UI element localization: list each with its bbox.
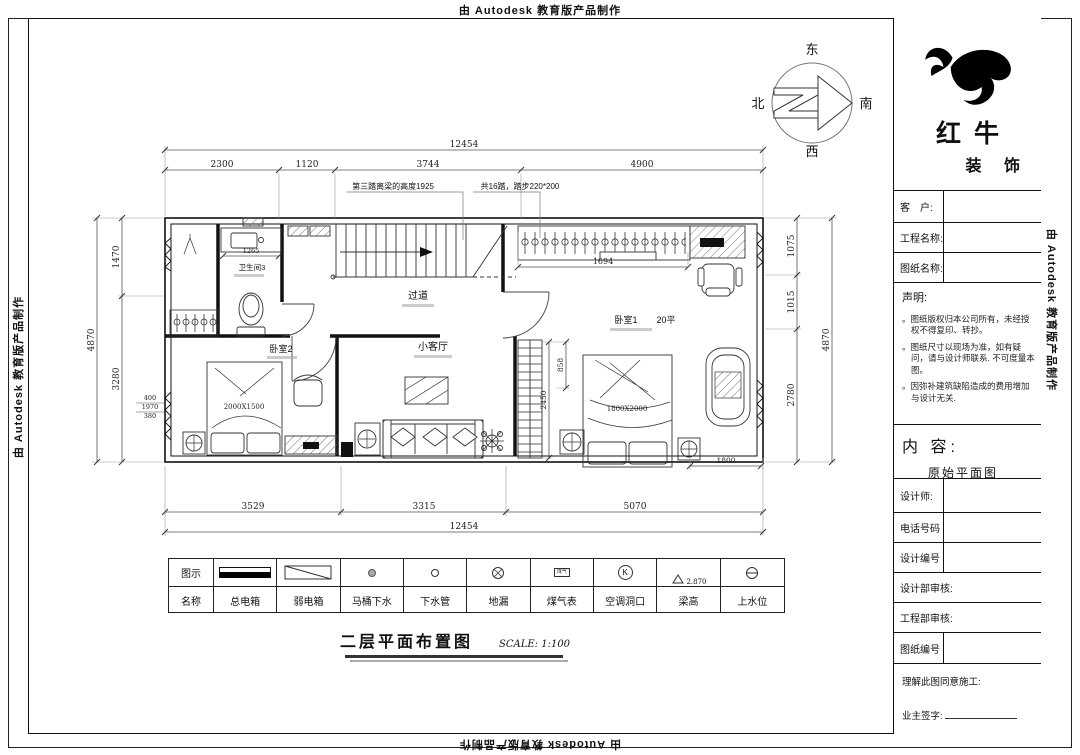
floor-drain-symbol [467, 559, 530, 587]
row-eng-dept-review: 工程部审核: [894, 602, 1041, 632]
legend-name: 下水管 [404, 587, 467, 613]
legend-name: 地漏 [467, 587, 530, 613]
sheet-inner-border [28, 18, 1041, 734]
row-design-no: 设计编号 [894, 542, 1041, 572]
main-electric-box-symbol [214, 559, 277, 587]
row-design-dept-review: 设计部审核: [894, 572, 1041, 602]
row-phone: 电话号码 [894, 512, 1041, 542]
company-name: 红牛 [894, 114, 1041, 150]
statement-item: 。图纸尺寸以现场为准，如有疑问，请与设计师联系. 不可度量本图。 [902, 342, 1035, 376]
legend-name: 空调洞口 [594, 587, 657, 613]
row-designer: 设计师: [894, 478, 1041, 512]
drawing-no-label: 图纸编号 [894, 633, 944, 663]
legend-symbol-header: 图示 [169, 559, 214, 587]
company-logo-cell: 红牛 装 饰 [894, 18, 1041, 190]
row-project-name: 工程名称: [894, 222, 1041, 252]
client-label: 客 户: [894, 191, 944, 222]
legend-name: 梁高 [657, 587, 720, 613]
title-underline-bar-2 [350, 660, 568, 662]
beam-height-symbol: 2.870 [657, 559, 720, 587]
water-supply-symbol [721, 559, 784, 587]
statement-title: 声明: [902, 291, 1035, 306]
ac-opening-symbol: K [594, 559, 657, 587]
legend-name: 马桶下水 [341, 587, 404, 613]
designer-label: 设计师: [894, 479, 944, 512]
drawing-title-text: 二层平面布置图 [340, 628, 473, 652]
company-name-2: 装 饰 [966, 152, 1029, 176]
legend-name: 弱电箱 [277, 587, 340, 613]
plot-stamp-right: 由 Autodesk 教育版产品制作 [1046, 135, 1060, 485]
statement-block: 声明: 。图纸版权归本公司所有，未经授权不得复印、转抄。 。图纸尺寸以现场为准，… [894, 282, 1041, 424]
design-no-label: 设计编号 [894, 543, 944, 572]
legend-name-header: 名称 [169, 587, 214, 613]
signature-block: 理解此图同意施工: 业主签字: [894, 663, 1041, 734]
toilet-drain-symbol [341, 559, 404, 587]
plot-stamp-left: 由 Autodesk 教育版产品制作 [10, 202, 24, 552]
legend-table: 图示 煤气 K 2.870 名称 总电箱 弱电箱 马桶下水 下水管 地漏 煤气表… [168, 558, 785, 613]
title-block: 红牛 装 饰 客 户: 工程名称: 图纸名称: 声明: 。图纸版权归本公司所有，… [893, 18, 1041, 734]
plot-stamp-bottom: 由 Autodesk 教育版产品制作 [0, 737, 1080, 753]
drain-pipe-symbol [404, 559, 467, 587]
row-drawing-no: 图纸编号 [894, 632, 1041, 663]
legend-name: 煤气表 [531, 587, 594, 613]
drawing-name-label: 图纸名称: [894, 253, 944, 282]
legend-name: 上水位 [721, 587, 784, 613]
plot-stamp-top: 由 Autodesk 教育版产品制作 [0, 2, 1080, 18]
eng-dept-review-label: 工程部审核: [894, 610, 953, 625]
signature-line [945, 708, 1017, 719]
drawing-scale: SCALE: 1:100 [499, 639, 570, 650]
phone-label: 电话号码 [894, 513, 944, 542]
content-label: 内 容: [902, 433, 1035, 457]
weak-electric-box-symbol [277, 559, 340, 587]
company-logo-icon [918, 32, 1018, 122]
statement-item: 。因弥补建筑缺陷造成的费用增加与设计无关. [902, 381, 1035, 404]
drawing-title: 二层平面布置图 SCALE: 1:100 [340, 628, 570, 652]
design-dept-review-label: 设计部审核: [894, 580, 953, 595]
statement-item: 。图纸版权归本公司所有，未经授权不得复印、转抄。 [902, 314, 1035, 337]
title-underline-bar [345, 655, 563, 658]
legend-name: 总电箱 [214, 587, 277, 613]
content-block: 内 容: 原始平面图 [894, 424, 1041, 478]
row-client: 客 户: [894, 190, 1041, 222]
owner-sign-label: 业主签字: [902, 711, 943, 722]
gas-meter-symbol: 煤气 [531, 559, 594, 587]
agreement-text: 理解此图同意施工: [902, 674, 981, 688]
row-drawing-name: 图纸名称: [894, 252, 1041, 282]
project-name-label: 工程名称: [894, 223, 944, 252]
